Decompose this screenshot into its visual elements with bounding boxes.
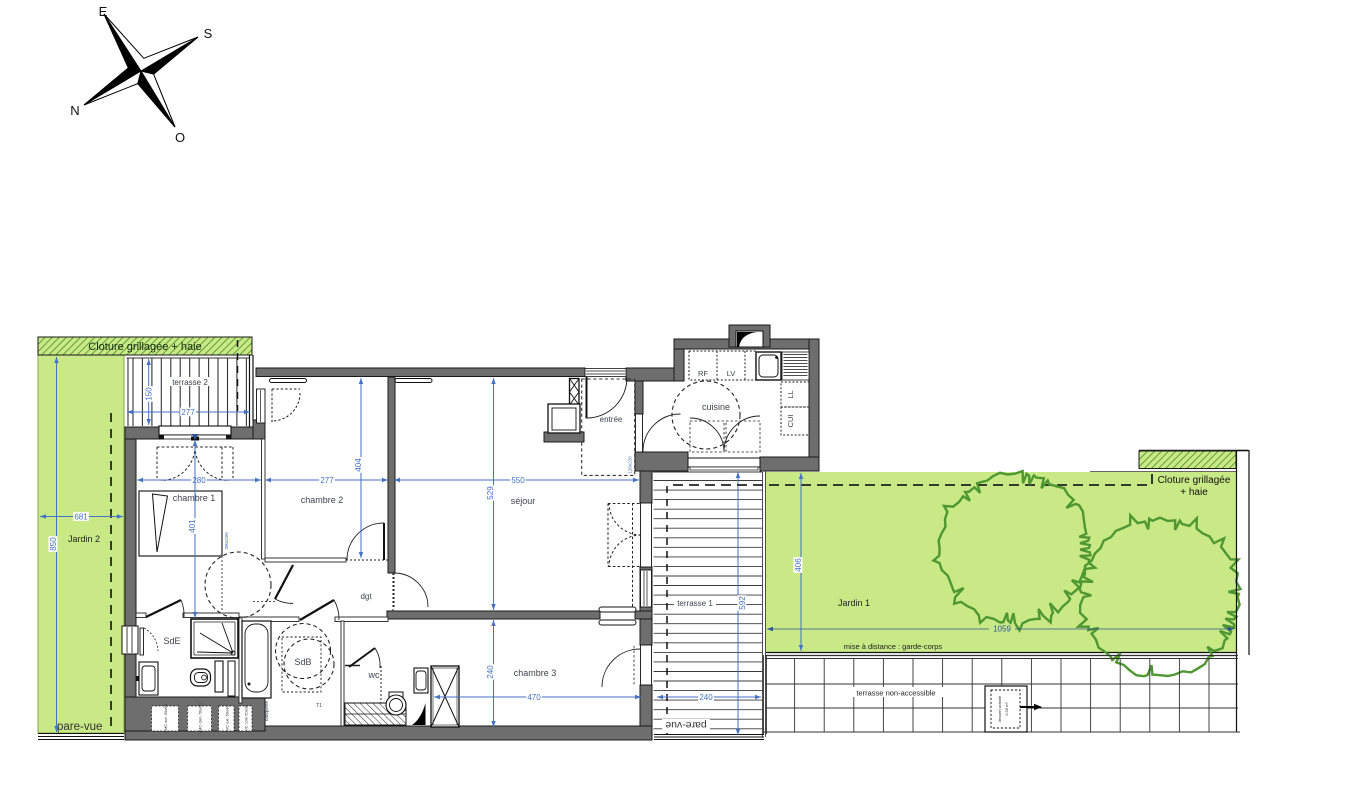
svg-text:wc: wc bbox=[368, 670, 380, 680]
svg-text:LL: LL bbox=[786, 390, 795, 398]
svg-text:Jardin 2: Jardin 2 bbox=[68, 534, 100, 544]
svg-text:entrée: entrée bbox=[600, 415, 623, 424]
svg-text:550: 550 bbox=[511, 476, 525, 485]
svg-text:banquette: banquette bbox=[264, 700, 269, 721]
svg-text:A/C com 50x30: A/C com 50x30 bbox=[244, 704, 249, 732]
svg-text:O: O bbox=[175, 130, 185, 145]
svg-text:VMC clim. 50x60: VMC clim. 50x60 bbox=[198, 703, 203, 734]
svg-text:277: 277 bbox=[320, 476, 334, 485]
svg-text:cuisine: cuisine bbox=[702, 402, 730, 412]
svg-text:LV: LV bbox=[727, 369, 736, 378]
svg-text:mise à distance : garde-corps: mise à distance : garde-corps bbox=[844, 642, 943, 651]
svg-text:terrasse non-accessible: terrasse non-accessible bbox=[856, 689, 935, 698]
svg-text:Cloture grillagée + haie: Cloture grillagée + haie bbox=[88, 341, 201, 353]
svg-text:+ haie: + haie bbox=[1180, 487, 1208, 498]
svg-text:Cloture grillagée: Cloture grillagée bbox=[1158, 475, 1231, 486]
svg-text:chambre 2: chambre 2 bbox=[301, 495, 344, 505]
svg-text:N: N bbox=[70, 103, 79, 118]
svg-text:dessert activité: dessert activité bbox=[997, 695, 1002, 722]
svg-text:T1: T1 bbox=[316, 703, 322, 709]
svg-text:SdE: SdE bbox=[163, 636, 180, 646]
svg-text:chambre 1: chambre 1 bbox=[173, 493, 216, 503]
svg-text:401: 401 bbox=[188, 519, 197, 533]
svg-text:1059: 1059 bbox=[993, 625, 1011, 634]
svg-text:séjour: séjour bbox=[511, 496, 536, 506]
svg-text:240: 240 bbox=[699, 693, 713, 702]
svg-text:406: 406 bbox=[794, 558, 803, 572]
svg-text:300x280: 300x280 bbox=[224, 532, 229, 550]
svg-text:E: E bbox=[99, 4, 108, 19]
svg-text:VMC act. 50x60: VMC act. 50x60 bbox=[163, 704, 168, 733]
svg-text:chambre 3: chambre 3 bbox=[514, 668, 557, 678]
svg-text:CUI: CUI bbox=[786, 415, 795, 428]
svg-text:529: 529 bbox=[486, 486, 495, 500]
svg-text:Jardin 1: Jardin 1 bbox=[838, 598, 870, 608]
svg-text:A/C ext. 50x30: A/C ext. 50x30 bbox=[224, 705, 229, 732]
svg-text:240: 240 bbox=[486, 665, 495, 679]
svg-text:850: 850 bbox=[49, 537, 58, 551]
svg-text:150: 150 bbox=[145, 387, 154, 401]
svg-text:404: 404 bbox=[354, 458, 363, 472]
svg-text:terrasse 1: terrasse 1 bbox=[677, 599, 713, 608]
svg-text:S: S bbox=[204, 26, 213, 41]
svg-text:277: 277 bbox=[181, 408, 195, 417]
svg-text:681: 681 bbox=[74, 512, 88, 521]
svg-text:SdB: SdB bbox=[294, 657, 311, 667]
svg-text:470: 470 bbox=[527, 693, 541, 702]
svg-text:dgt: dgt bbox=[360, 592, 372, 601]
svg-text:RF: RF bbox=[698, 369, 708, 378]
svg-text:280: 280 bbox=[192, 476, 206, 485]
svg-text:0.36 m²: 0.36 m² bbox=[1004, 702, 1009, 716]
svg-text:pare-vue: pare-vue bbox=[57, 721, 102, 733]
svg-text:592: 592 bbox=[738, 596, 747, 610]
svg-text:pare-vue: pare-vue bbox=[665, 719, 707, 731]
svg-text:terrasse 2: terrasse 2 bbox=[172, 378, 208, 387]
svg-text:120x220: 120x220 bbox=[628, 456, 633, 474]
